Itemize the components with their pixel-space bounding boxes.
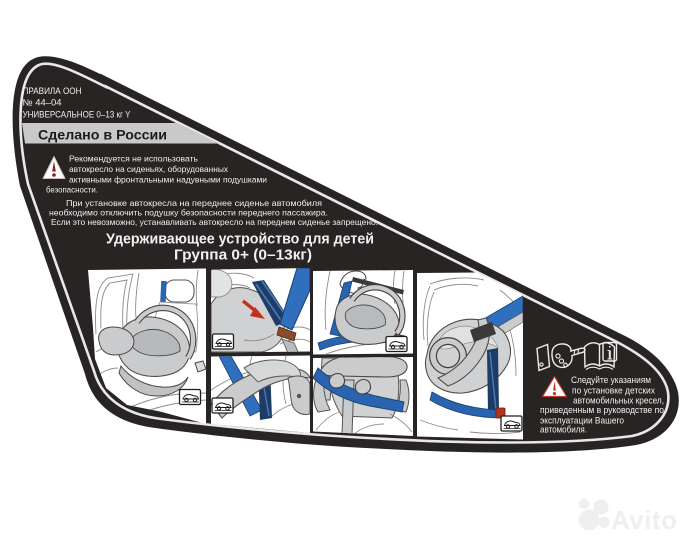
svg-text:приведенным в руководстве по: приведенным в руководстве по — [540, 405, 664, 415]
svg-text:УНИВЕРСАЛЬНОЕ 0–13 кг Y: УНИВЕРСАЛЬНОЕ 0–13 кг Y — [23, 110, 131, 120]
svg-text:Рекомендуется не использовать: Рекомендуется не использовать — [69, 154, 199, 164]
svg-text:Следуйте указаниям: Следуйте указаниям — [571, 375, 651, 385]
svg-text:автомобильных кресел,: автомобильных кресел, — [573, 396, 664, 406]
svg-text:Удерживающее устройство для де: Удерживающее устройство для детей — [106, 231, 374, 248]
svg-text:безопасности.: безопасности. — [46, 185, 98, 195]
svg-text:Avito: Avito — [611, 505, 678, 535]
svg-text:по установке детских: по установке детских — [572, 386, 656, 396]
svg-text:активными фронтальными надувны: активными фронтальными надувными подушка… — [69, 175, 267, 185]
svg-text:№ 44–04: № 44–04 — [23, 98, 62, 108]
svg-text:автокресло на сиденьях, оборуд: автокресло на сиденьях, оборудованных — [69, 164, 229, 174]
svg-text:Если это невозможно, устанавли: Если это невозможно, устанавливать авток… — [51, 217, 378, 227]
svg-text:автомобиля.: автомобиля. — [540, 425, 587, 435]
svg-text:необходимо отключить подушку б: необходимо отключить подушку безопасност… — [49, 208, 328, 218]
svg-text:При установке автокресла на пе: При установке автокресла на переднее сид… — [66, 198, 322, 208]
svg-text:Сделано в России: Сделано в России — [38, 128, 167, 143]
svg-text:Группа 0+ (0–13кг): Группа 0+ (0–13кг) — [174, 247, 312, 264]
svg-text:ПРАВИЛА ООН: ПРАВИЛА ООН — [23, 86, 82, 96]
